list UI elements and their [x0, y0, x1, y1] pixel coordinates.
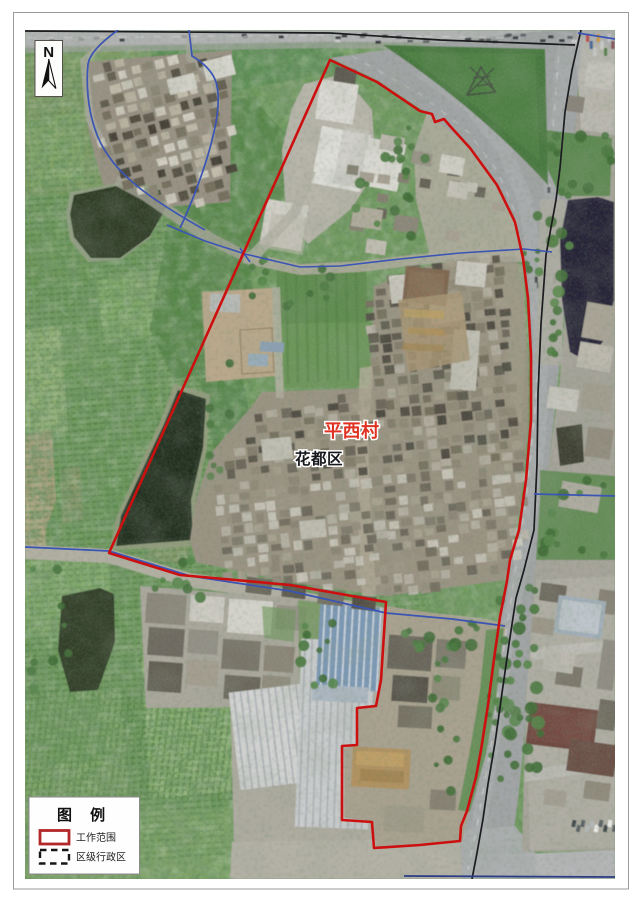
svg-text:平西村: 平西村 [324, 420, 380, 441]
svg-text:图 例: 图 例 [57, 806, 112, 824]
svg-text:N: N [43, 44, 54, 61]
svg-text:工作范围: 工作范围 [76, 831, 116, 844]
svg-text:区级行政区: 区级行政区 [76, 851, 126, 864]
svg-text:花都区: 花都区 [295, 449, 343, 468]
